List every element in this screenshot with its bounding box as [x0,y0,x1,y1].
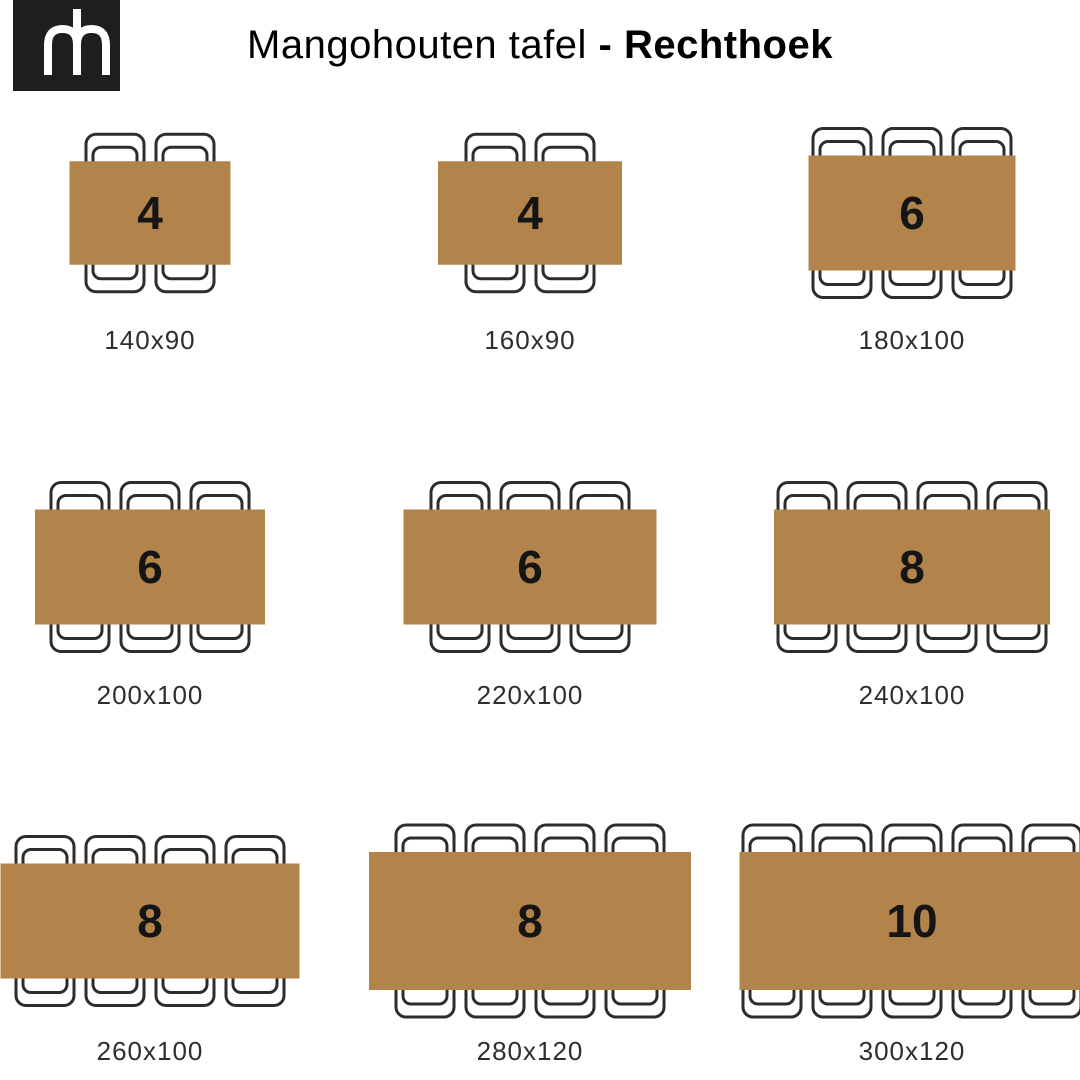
seat-count: 8 [899,541,925,593]
seat-count: 8 [137,895,163,947]
page-title: Mangohouten tafel - Rechthoek [0,0,1080,90]
size-label: 220x100 [477,680,584,710]
seat-count: 4 [517,187,543,239]
size-diagram-220x100: 6220x100 [404,483,657,711]
size-label: 180x100 [859,325,966,355]
page-title-bold: - Rechthoek [599,23,833,68]
size-diagram-300x120: 10300x120 [740,825,1080,1066]
seat-count: 4 [137,187,163,239]
size-diagram-260x100: 8260x100 [1,837,300,1067]
size-label: 200x100 [97,680,204,710]
size-diagram-140x90: 4140x90 [70,134,231,355]
seat-count: 8 [517,895,543,947]
size-label: 240x100 [859,680,966,710]
seat-count: 6 [137,541,163,593]
size-diagrams-canvas: 4140x904160x906180x1006200x1006220x10082… [0,0,1080,1080]
size-label: 300x120 [859,1036,966,1066]
seat-count: 6 [517,541,543,593]
size-label: 160x90 [484,325,575,355]
seat-count: 6 [899,187,925,239]
size-label: 280x120 [477,1036,584,1066]
seat-count: 10 [886,895,937,947]
size-diagram-160x90: 4160x90 [438,134,622,355]
size-diagram-180x100: 6180x100 [809,129,1016,356]
size-diagram-240x100: 8240x100 [774,483,1050,711]
size-label: 260x100 [97,1036,204,1066]
size-diagram-200x100: 6200x100 [35,483,265,711]
size-diagram-280x120: 8280x120 [369,825,691,1066]
size-label: 140x90 [104,325,195,355]
page-title-regular: Mangohouten tafel [247,23,598,68]
